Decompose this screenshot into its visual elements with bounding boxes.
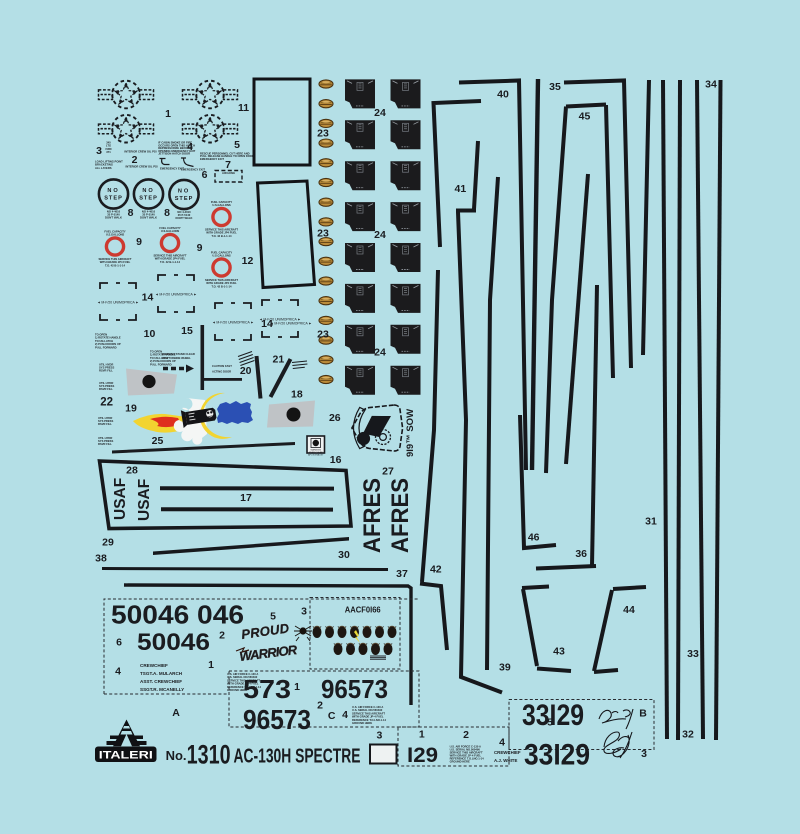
svg-text:573: 573 [243,674,291,704]
svg-text:ITALERI: ITALERI [99,749,153,761]
svg-text:ASST. CREWCHIEF: ASST. CREWCHIEF [140,679,182,684]
svg-text:ACTING DOOR: ACTING DOOR [212,369,231,373]
svg-text:B: B [639,708,647,720]
svg-text:EMERGENCY EXIT: EMERGENCY EXIT [200,157,224,161]
svg-text:371: 371 [106,150,111,154]
svg-text:C: C [328,710,336,722]
svg-text:25: 25 [152,435,164,447]
svg-text:33: 33 [687,648,699,660]
svg-text:A: A [172,707,180,719]
svg-text:35: 35 [549,81,561,93]
svg-text:◄ M-F/20 UNIMOPRICA ►: ◄ M-F/20 UNIMOPRICA ► [270,321,312,325]
svg-text:6: 6 [202,169,208,181]
svg-text:I29: I29 [407,744,438,767]
svg-text:36: 36 [575,548,587,560]
svg-text:1310: 1310 [187,740,231,770]
svg-text:24: 24 [374,107,386,119]
svg-text:AFRES: AFRES [359,478,386,553]
svg-text:4: 4 [499,737,505,749]
svg-text:10: 10 [144,328,156,340]
svg-text:40: 40 [497,89,509,101]
svg-text:9I9™ SOW: 9I9™ SOW [405,409,416,457]
svg-text:RSVR FILL: RSVR FILL [99,387,113,391]
svg-text:44: 44 [623,604,635,616]
svg-text:5: 5 [234,139,240,151]
svg-text:28: 28 [126,465,138,477]
svg-text:2: 2 [219,630,225,642]
svg-text:23: 23 [317,128,329,140]
svg-text:AACF0I66: AACF0I66 [345,606,382,615]
svg-text:7: 7 [225,159,231,171]
svg-text:32: 32 [682,729,694,741]
svg-text:34: 34 [705,79,717,91]
svg-text:GROUND HERE: GROUND HERE [352,721,372,725]
svg-text:8: 8 [128,207,134,219]
svg-text:29: 29 [102,537,114,549]
svg-text:AFRES: AFRES [387,478,414,553]
svg-text:APU/TURBINE WHEEL: APU/TURBINE WHEEL [162,356,191,360]
svg-text:WARNING STAND CLEAR: WARNING STAND CLEAR [162,352,195,356]
svg-text:CAUTION FAST: CAUTION FAST [212,364,232,368]
svg-text:33I29: 33I29 [522,699,584,732]
svg-text:45: 45 [579,111,591,123]
svg-text:37: 37 [396,568,408,580]
svg-text:3: 3 [301,606,307,618]
svg-text:46: 46 [528,532,540,544]
svg-text:5: 5 [547,717,553,729]
svg-text:33I29: 33I29 [524,739,590,772]
svg-text:14: 14 [142,292,154,304]
svg-text:96573: 96573 [321,674,388,704]
svg-text:JETTISON HATCH DOOR: JETTISON HATCH DOOR [158,152,190,156]
svg-text:6: 6 [116,637,122,649]
svg-text:RSVR FILL: RSVR FILL [98,422,112,426]
svg-text:4: 4 [342,709,348,721]
svg-text:50046 046: 50046 046 [111,600,244,630]
svg-text:19: 19 [125,403,137,415]
svg-text:CREWCHIEF: CREWCHIEF [140,663,168,668]
svg-text:31: 31 [645,516,657,528]
svg-text:SSGT.R. MCANELLY: SSGT.R. MCANELLY [140,687,184,692]
svg-text:AC-130H SPECTRE: AC-130H SPECTRE [234,746,361,768]
svg-text:3: 3 [96,145,102,157]
svg-text:RSVR FILL: RSVR FILL [99,369,113,373]
svg-text:23: 23 [317,329,329,341]
svg-text:21: 21 [273,354,285,366]
svg-text:24: 24 [374,229,386,241]
svg-text:AIR HOSE: AIR HOSE [222,171,235,175]
svg-text:USAF: USAF [112,478,129,520]
svg-text:38: 38 [95,553,107,565]
svg-text:PULL FORWARD: PULL FORWARD [95,345,117,349]
svg-text:42: 42 [430,564,442,576]
svg-text:11: 11 [238,102,249,114]
svg-text:8: 8 [164,207,170,219]
svg-text:2: 2 [317,700,323,712]
svg-text:2: 2 [463,729,469,741]
svg-text:3: 3 [641,748,647,760]
svg-text:ALL LAYERS: ALL LAYERS [95,166,112,170]
svg-text:TSGT.A. MULARCH: TSGT.A. MULARCH [140,671,183,676]
svg-text:No.: No. [166,748,187,763]
svg-text:18: 18 [291,389,303,401]
svg-text:12: 12 [242,255,254,267]
svg-text:INTERIOR CREW OIL PSI: INTERIOR CREW OIL PSI [124,150,156,154]
svg-text:1: 1 [294,681,300,693]
svg-text:16: 16 [330,454,342,466]
svg-text:1: 1 [165,108,171,120]
svg-text:USAF: USAF [136,479,153,521]
svg-text:CREWCHIEF: CREWCHIEF [494,750,521,755]
svg-text:GROUND HERE: GROUND HERE [450,759,470,763]
svg-text:96573: 96573 [243,704,311,735]
svg-text:2: 2 [132,154,138,166]
svg-text:A.J. WHITE: A.J. WHITE [494,758,517,763]
svg-text:1: 1 [208,659,214,671]
svg-text:9: 9 [197,242,203,254]
svg-text:20: 20 [240,365,252,377]
svg-text:22: 22 [100,397,113,409]
svg-text:17: 17 [240,492,252,504]
svg-text:26: 26 [329,412,341,424]
svg-text:15: 15 [181,325,193,337]
svg-text:APU EXHAUST: APU EXHAUST [308,453,324,456]
svg-text:1: 1 [419,729,425,741]
svg-text:27: 27 [382,466,394,478]
svg-text:5: 5 [270,611,276,623]
svg-text:3: 3 [376,730,382,742]
svg-text:39: 39 [499,662,511,674]
svg-text:9: 9 [136,236,142,248]
svg-text:50046: 50046 [137,629,210,656]
svg-text:RSVR FILL: RSVR FILL [98,442,112,446]
svg-text:23: 23 [317,228,329,240]
svg-text:24: 24 [374,347,386,359]
svg-text:4: 4 [115,666,121,678]
svg-text:PULL FORWARD: PULL FORWARD [150,362,172,366]
svg-text:43: 43 [553,646,565,658]
svg-text:30: 30 [338,549,350,561]
svg-text:41: 41 [455,183,467,195]
svg-text:INTERIOR CREW OIL PSI: INTERIOR CREW OIL PSI [126,164,158,168]
